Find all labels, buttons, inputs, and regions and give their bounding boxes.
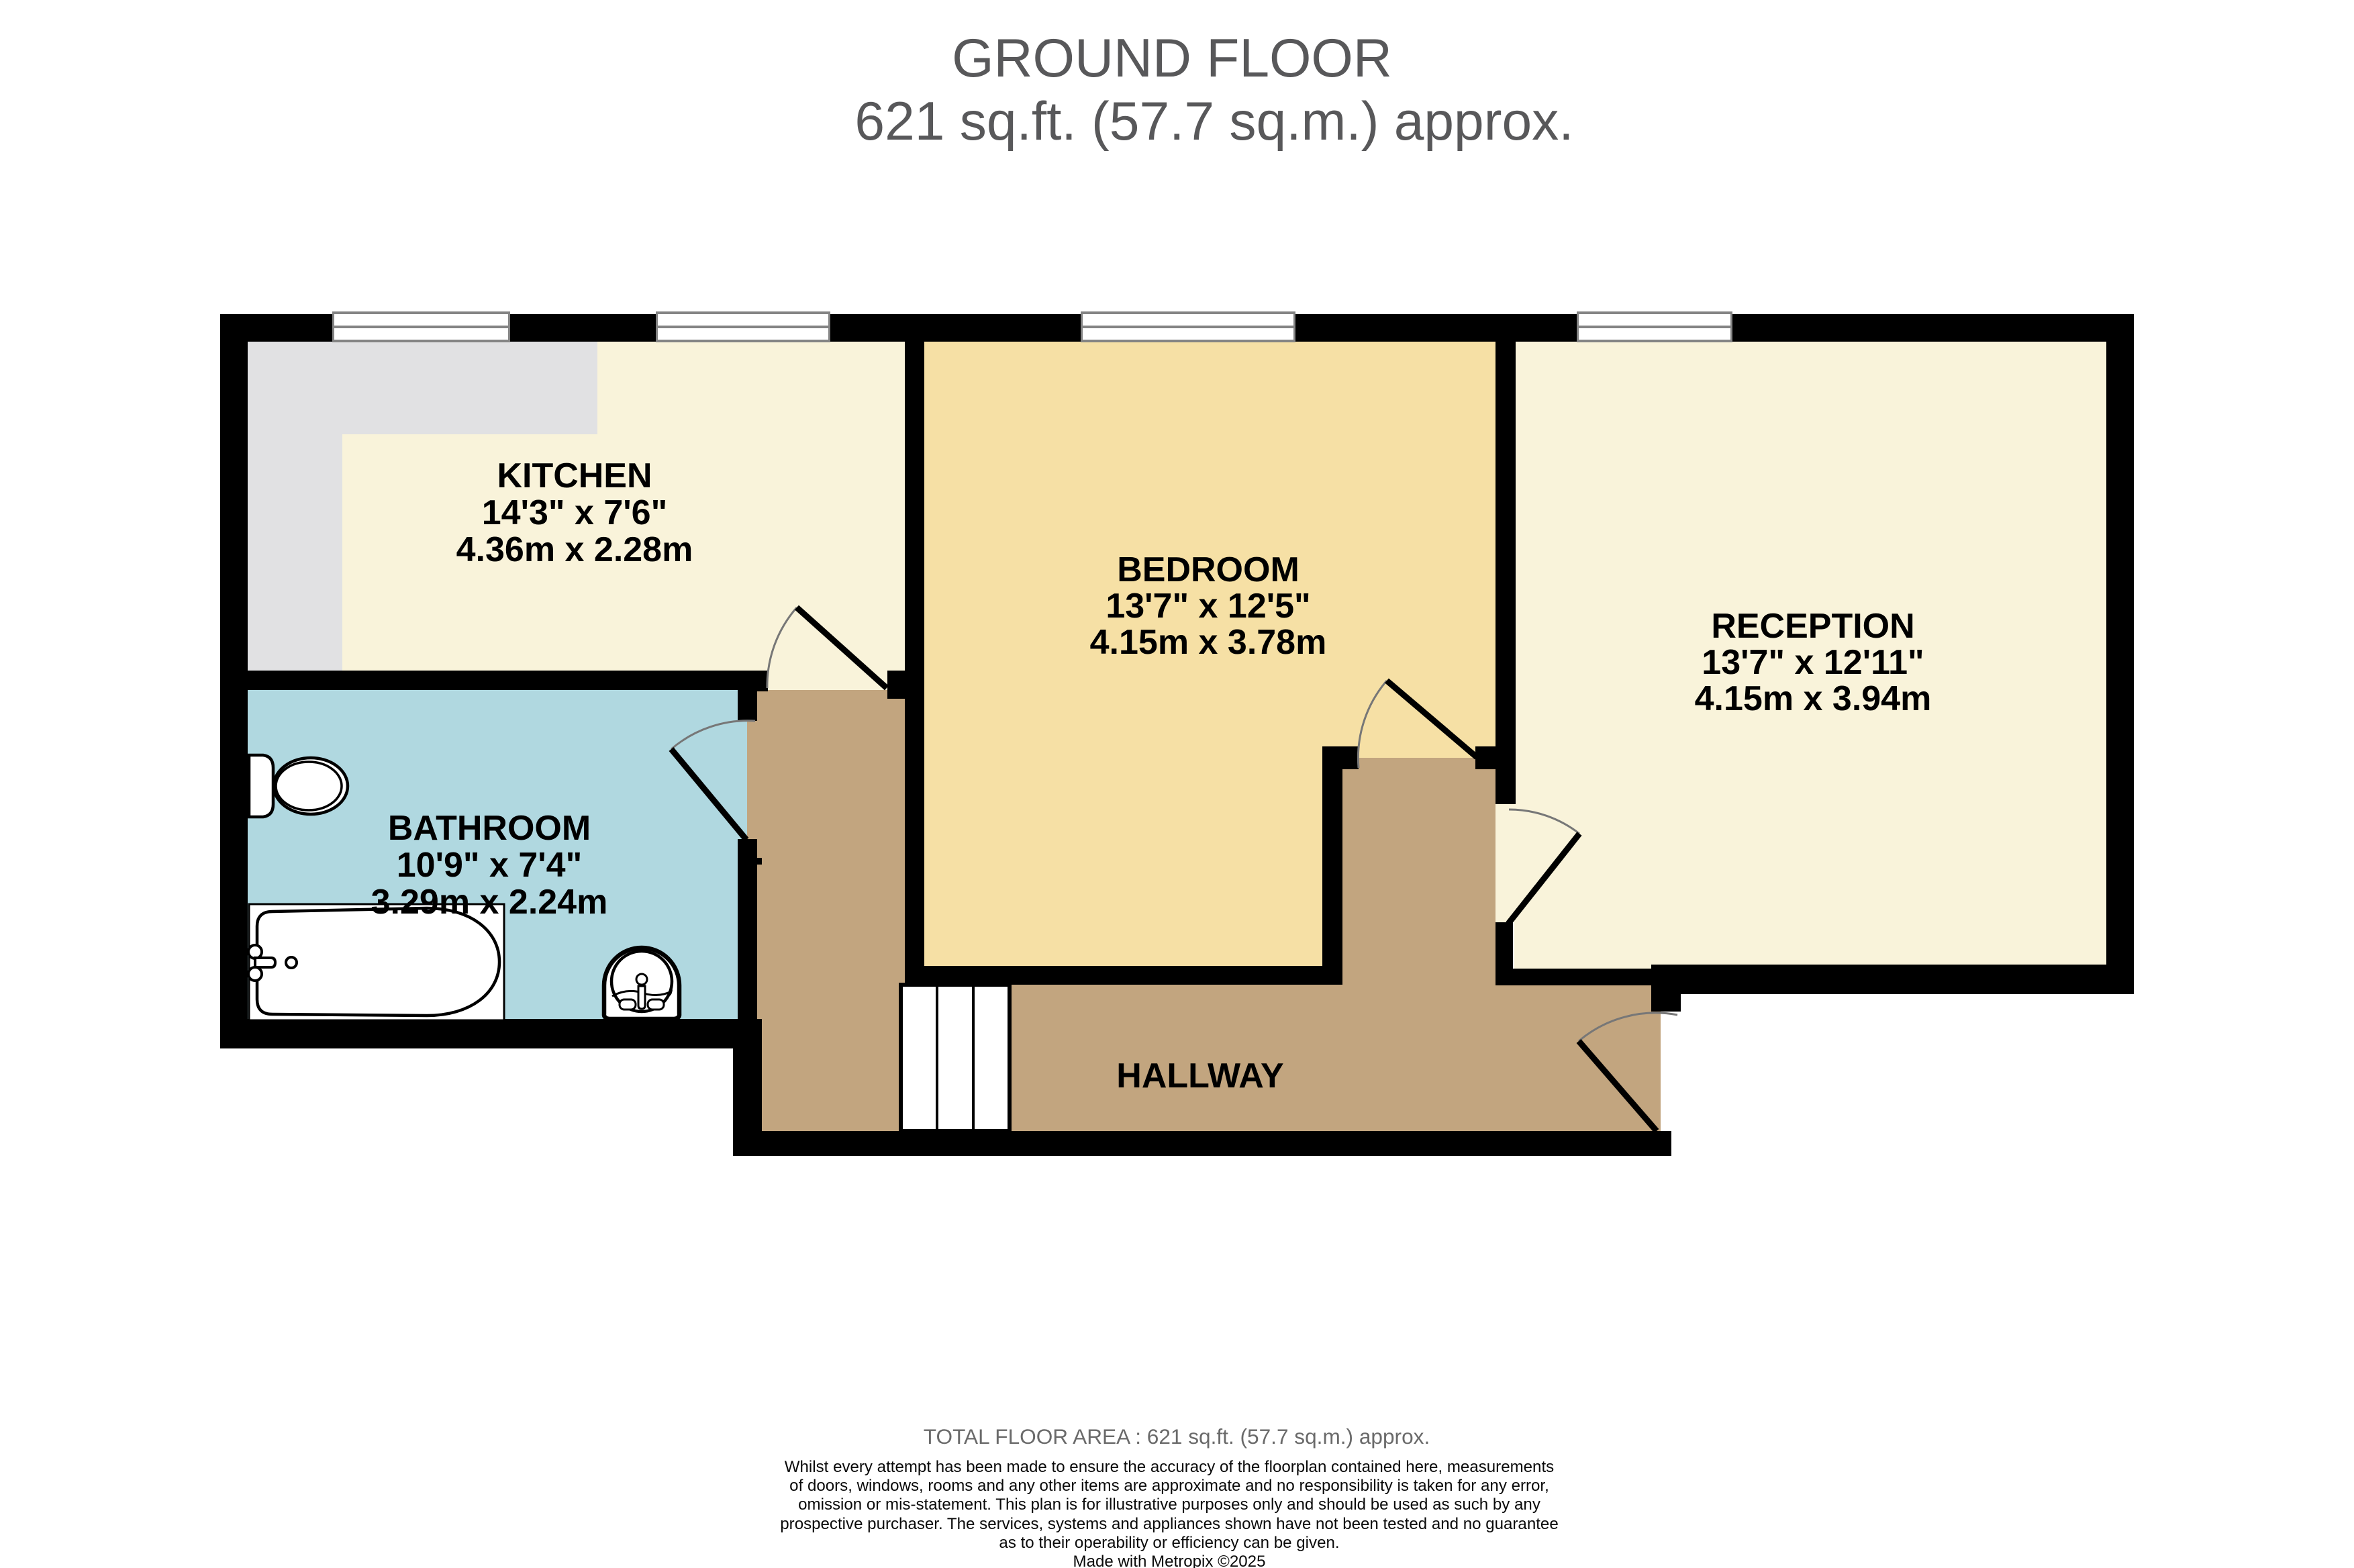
svg-text:Made with Metropix ©2025: Made with Metropix ©2025: [1073, 1553, 1266, 1568]
svg-text:prospective purchaser. The ser: prospective purchaser. The services, sys…: [780, 1515, 1558, 1533]
svg-text:as to their operability or eff: as to their operability or efficiency ca…: [999, 1534, 1339, 1552]
svg-text:of doors, windows, rooms and a: of doors, windows, rooms and any other i…: [789, 1477, 1549, 1495]
svg-text:HALLWAY: HALLWAY: [1116, 1057, 1283, 1095]
svg-text:RECEPTION: RECEPTION: [1711, 607, 1914, 646]
svg-text:621 sq.ft. (57.7 sq.m.) approx: 621 sq.ft. (57.7 sq.m.) approx.: [854, 91, 1573, 152]
svg-text:BEDROOM: BEDROOM: [1117, 550, 1299, 589]
svg-text:10'9" x 7'4": 10'9" x 7'4": [397, 846, 582, 885]
svg-text:KITCHEN: KITCHEN: [497, 456, 652, 495]
svg-text:4.36m x 2.28m: 4.36m x 2.28m: [456, 530, 693, 569]
svg-text:Whilst every attempt has been: Whilst every attempt has been made to en…: [785, 1458, 1554, 1476]
svg-text:BATHROOM: BATHROOM: [388, 809, 591, 848]
svg-text:14'3" x 7'6": 14'3" x 7'6": [482, 493, 667, 532]
svg-text:omission or mis-statement. Thi: omission or mis-statement. This plan is …: [798, 1496, 1540, 1514]
svg-text:4.15m x 3.94m: 4.15m x 3.94m: [1695, 679, 1932, 718]
svg-text:3.29m x 2.24m: 3.29m x 2.24m: [371, 883, 608, 922]
svg-text:TOTAL FLOOR AREA : 621 sq.ft.: TOTAL FLOOR AREA : 621 sq.ft. (57.7 sq.m…: [924, 1424, 1430, 1449]
svg-text:13'7" x 12'11": 13'7" x 12'11": [1702, 643, 1924, 682]
svg-text:13'7" x 12'5": 13'7" x 12'5": [1106, 587, 1310, 626]
svg-text:4.15m x 3.78m: 4.15m x 3.78m: [1090, 623, 1327, 662]
svg-text:GROUND FLOOR: GROUND FLOOR: [952, 28, 1392, 89]
